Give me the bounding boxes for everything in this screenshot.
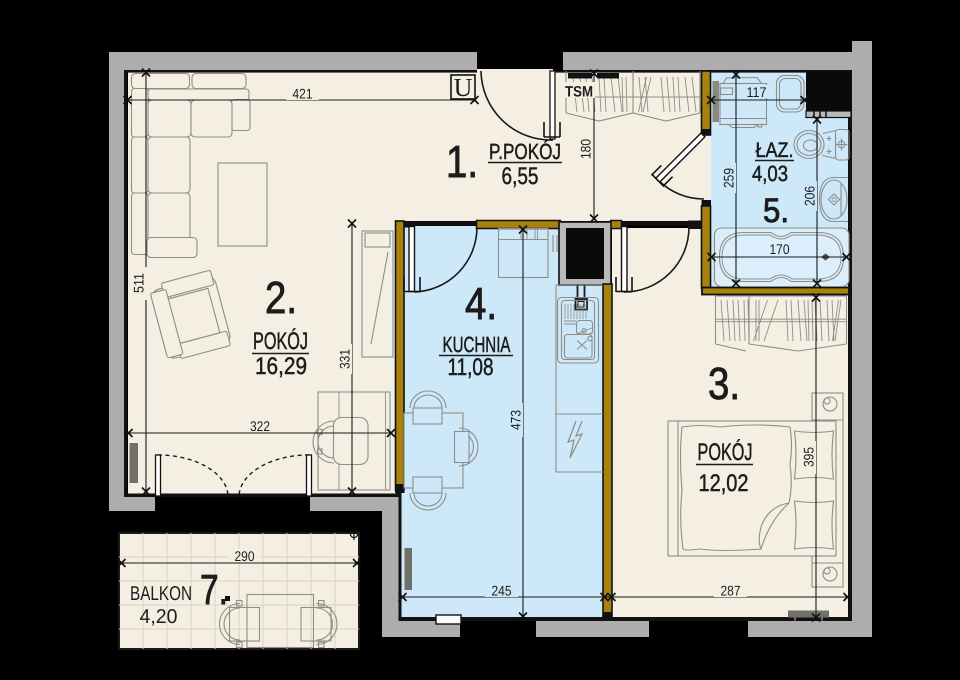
svg-text:117: 117 xyxy=(747,84,767,100)
svg-text:473: 473 xyxy=(508,410,524,430)
svg-text:11,08: 11,08 xyxy=(448,354,494,381)
svg-text:POKÓJ: POKÓJ xyxy=(253,328,308,355)
svg-text:2.: 2. xyxy=(265,272,297,323)
svg-text:3.: 3. xyxy=(708,358,740,409)
svg-text:290: 290 xyxy=(235,548,255,564)
svg-text:U: U xyxy=(454,73,473,102)
svg-text:259: 259 xyxy=(721,168,737,188)
svg-text:16,29: 16,29 xyxy=(255,353,307,380)
svg-text:12,02: 12,02 xyxy=(699,470,749,497)
svg-text:ŁAZ.: ŁAZ. xyxy=(756,139,794,162)
svg-text:1.: 1. xyxy=(446,136,478,187)
svg-text:7.: 7. xyxy=(200,566,228,613)
svg-text:BALKON: BALKON xyxy=(130,583,192,605)
svg-text:287: 287 xyxy=(721,583,741,599)
svg-text:170: 170 xyxy=(770,241,790,257)
svg-text:395: 395 xyxy=(801,447,817,467)
svg-text:4,03: 4,03 xyxy=(752,161,788,186)
svg-text:511: 511 xyxy=(131,273,147,293)
svg-text:5.: 5. xyxy=(763,192,789,230)
svg-text:206: 206 xyxy=(802,186,818,206)
svg-text:POKÓJ: POKÓJ xyxy=(698,439,753,466)
svg-text:4.: 4. xyxy=(465,278,497,329)
svg-text:331: 331 xyxy=(337,349,353,369)
svg-text:6,55: 6,55 xyxy=(502,163,539,190)
svg-text:421: 421 xyxy=(293,86,313,102)
svg-text:4,20: 4,20 xyxy=(140,606,178,628)
svg-text:245: 245 xyxy=(492,583,512,599)
svg-text:TSM: TSM xyxy=(565,84,593,101)
svg-text:P.POKÓJ: P.POKÓJ xyxy=(489,139,561,164)
svg-text:322: 322 xyxy=(250,418,270,434)
svg-text:180: 180 xyxy=(578,139,594,159)
